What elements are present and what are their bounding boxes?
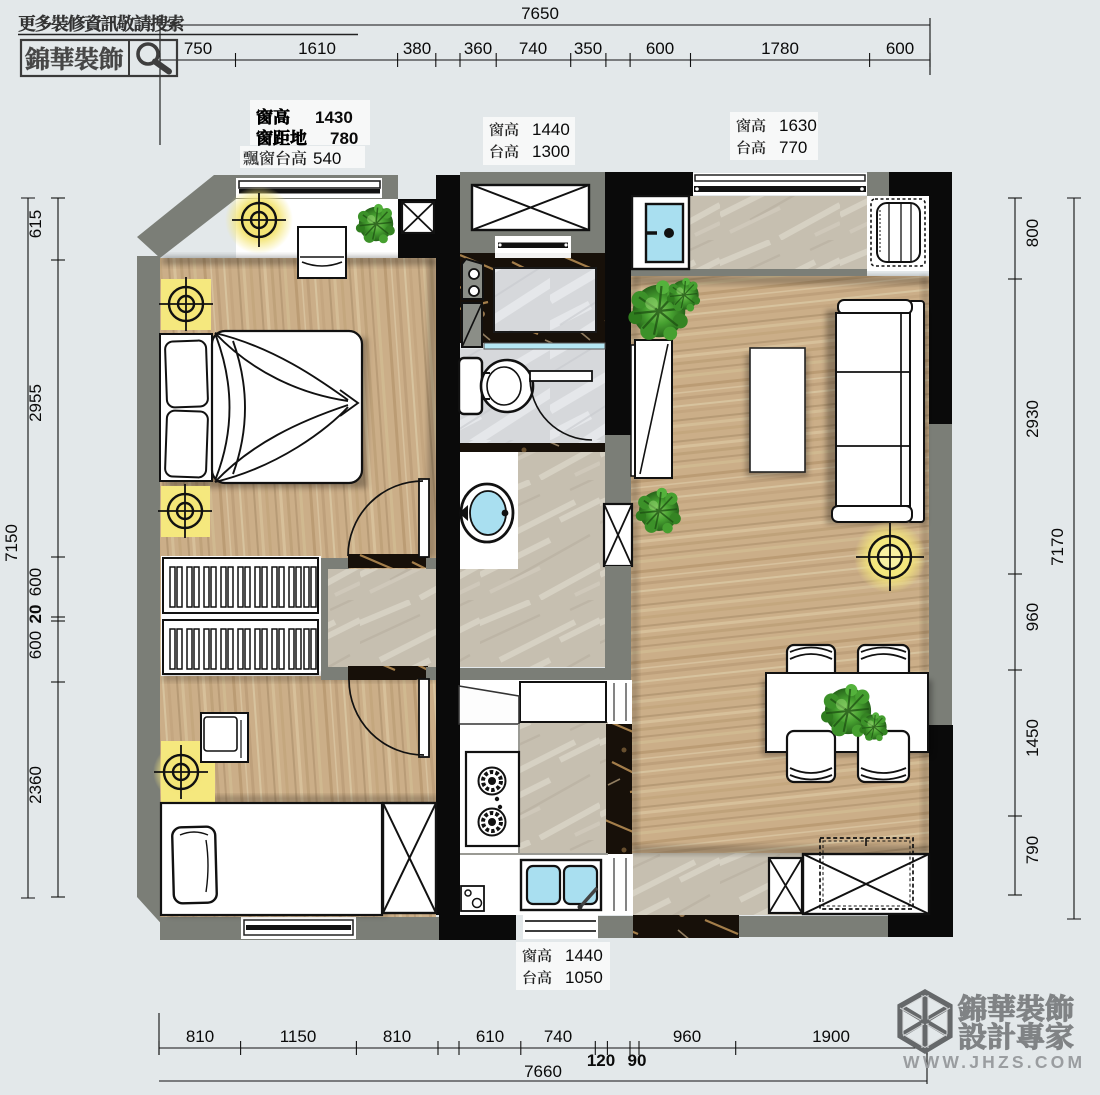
svg-text:740: 740 — [519, 39, 547, 58]
svg-text:540: 540 — [313, 149, 341, 168]
svg-text:1900: 1900 — [812, 1027, 850, 1046]
svg-text:780: 780 — [330, 129, 358, 148]
svg-text:1610: 1610 — [298, 39, 336, 58]
svg-text:90: 90 — [628, 1051, 647, 1070]
svg-text:960: 960 — [673, 1027, 701, 1046]
svg-text:600: 600 — [886, 39, 914, 58]
svg-text:20: 20 — [26, 605, 45, 624]
svg-text:7150: 7150 — [2, 524, 21, 562]
svg-text:1630: 1630 — [779, 116, 817, 135]
svg-text:600: 600 — [26, 568, 45, 596]
svg-text:7660: 7660 — [524, 1062, 562, 1081]
svg-text:600: 600 — [646, 39, 674, 58]
svg-text:615: 615 — [26, 210, 45, 238]
svg-text:7170: 7170 — [1048, 528, 1067, 566]
svg-text:770: 770 — [779, 138, 807, 157]
svg-text:2955: 2955 — [26, 384, 45, 422]
svg-text:810: 810 — [383, 1027, 411, 1046]
svg-text:2930: 2930 — [1023, 400, 1042, 438]
svg-text:380: 380 — [403, 39, 431, 58]
svg-text:1050: 1050 — [565, 968, 603, 987]
svg-text:2360: 2360 — [26, 766, 45, 804]
svg-text:1450: 1450 — [1023, 719, 1042, 757]
svg-text:810: 810 — [186, 1027, 214, 1046]
svg-text:1150: 1150 — [280, 1027, 317, 1046]
svg-text:1300: 1300 — [532, 142, 570, 161]
svg-text:360: 360 — [464, 39, 492, 58]
svg-text:1430: 1430 — [315, 108, 353, 127]
svg-text:120: 120 — [587, 1051, 615, 1070]
svg-text:600: 600 — [26, 631, 45, 659]
svg-text:1780: 1780 — [761, 39, 799, 58]
svg-text:1440: 1440 — [532, 120, 570, 139]
svg-text:800: 800 — [1023, 219, 1042, 247]
svg-text:WWW.JHZS.COM: WWW.JHZS.COM — [903, 1052, 1085, 1072]
svg-text:750: 750 — [184, 39, 212, 58]
svg-text:740: 740 — [544, 1027, 572, 1046]
svg-text:1440: 1440 — [565, 946, 603, 965]
svg-text:350: 350 — [574, 39, 602, 58]
svg-text:790: 790 — [1023, 836, 1042, 864]
svg-text:960: 960 — [1023, 603, 1042, 631]
svg-text:7650: 7650 — [521, 4, 559, 23]
svg-text:610: 610 — [476, 1027, 504, 1046]
